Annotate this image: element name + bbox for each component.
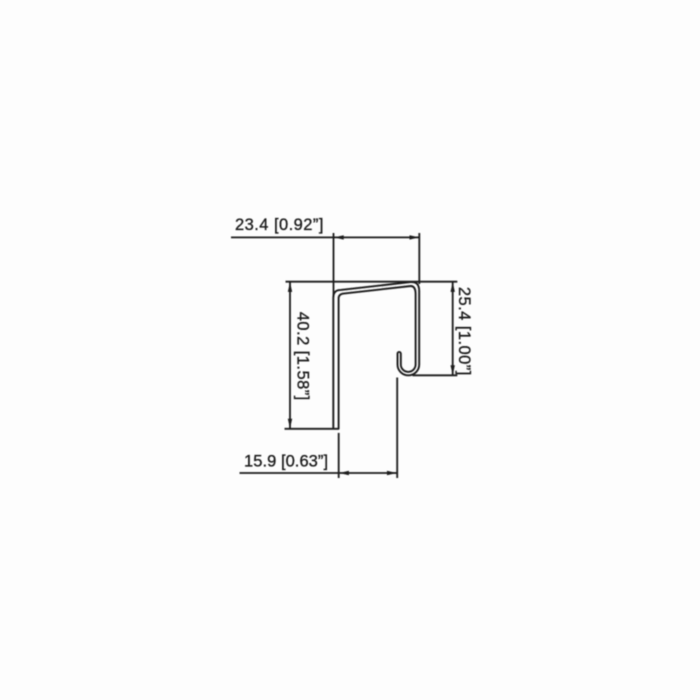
svg-text:40.2 [1.58”]: 40.2 [1.58”] bbox=[294, 312, 312, 401]
svg-text:23.4 [0.92”]: 23.4 [0.92”] bbox=[235, 216, 324, 234]
svg-text:15.9 [0.63”]: 15.9 [0.63”] bbox=[244, 453, 328, 471]
svg-text:25.4 [1.00”]: 25.4 [1.00”] bbox=[455, 287, 473, 376]
